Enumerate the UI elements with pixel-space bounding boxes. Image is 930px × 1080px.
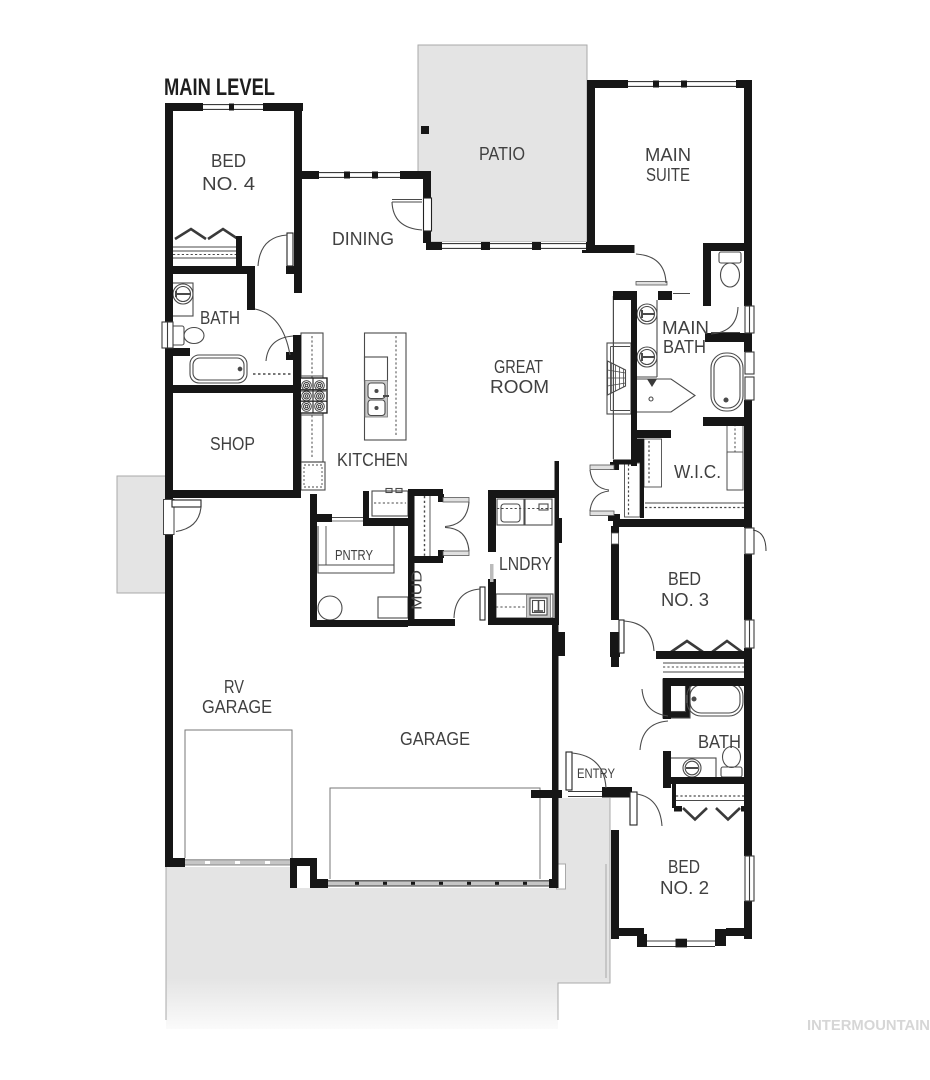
svg-text:BATH: BATH (698, 732, 741, 752)
svg-text:PNTRY: PNTRY (335, 547, 373, 564)
svg-text:NO. 3: NO. 3 (661, 590, 709, 610)
svg-text:BED: BED (211, 151, 246, 171)
svg-text:NO. 2: NO. 2 (660, 878, 709, 898)
svg-text:GARAGE: GARAGE (202, 697, 272, 717)
svg-text:GREAT: GREAT (494, 357, 543, 377)
svg-text:INTERMOUNTAIN: INTERMOUNTAIN (807, 1017, 930, 1034)
svg-text:SUITE: SUITE (646, 165, 690, 185)
svg-text:ROOM: ROOM (490, 377, 549, 397)
svg-text:RV: RV (224, 677, 244, 697)
svg-text:GARAGE: GARAGE (400, 729, 470, 749)
svg-text:DINING: DINING (332, 229, 394, 249)
svg-text:MAIN LEVEL: MAIN LEVEL (164, 74, 275, 101)
svg-text:BATH: BATH (200, 308, 240, 328)
svg-text:W.I.C.: W.I.C. (674, 462, 721, 482)
svg-text:LNDRY: LNDRY (499, 554, 552, 574)
svg-text:KITCHEN: KITCHEN (337, 450, 408, 470)
svg-text:MUD: MUD (409, 570, 426, 610)
svg-text:MAIN: MAIN (645, 145, 691, 165)
svg-text:MAIN: MAIN (662, 318, 709, 338)
svg-text:SHOP: SHOP (210, 434, 255, 454)
svg-text:ENTRY: ENTRY (577, 766, 615, 781)
svg-text:BED: BED (668, 857, 700, 877)
svg-text:NO. 4: NO. 4 (202, 174, 255, 194)
svg-text:BATH: BATH (663, 337, 706, 357)
svg-text:BED: BED (668, 569, 701, 589)
svg-text:PATIO: PATIO (479, 144, 525, 164)
